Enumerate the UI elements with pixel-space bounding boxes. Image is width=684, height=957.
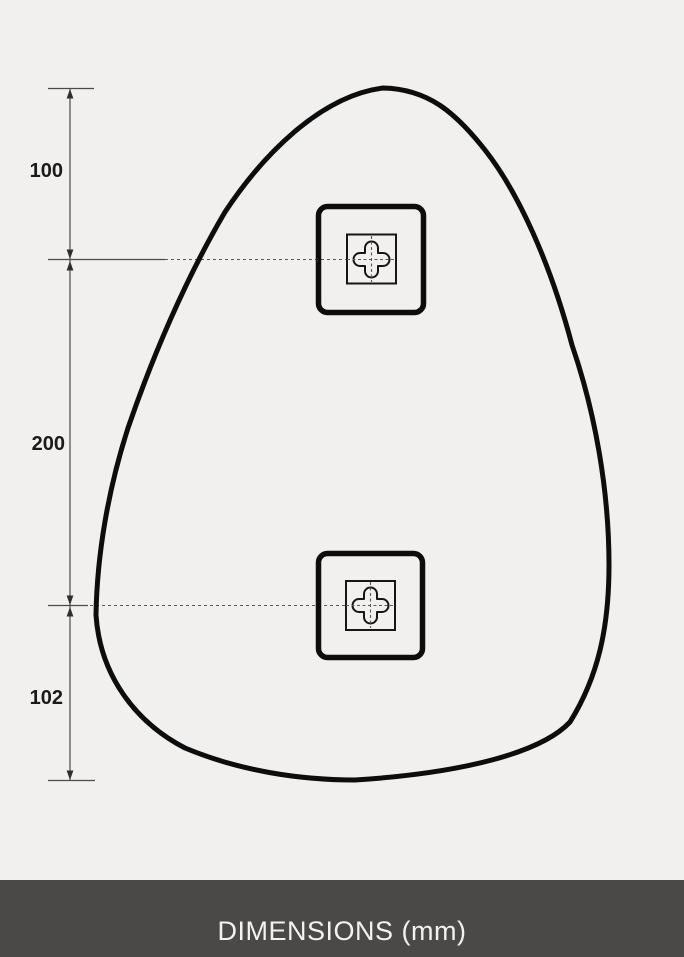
dim-label-100: 100 (30, 160, 63, 182)
dimension-drawing: 100 200 102 (0, 0, 684, 880)
dim-label-102: 102 (30, 687, 63, 709)
mirror-outline (96, 88, 609, 780)
arrow-down-icon (67, 250, 74, 260)
dim-label-200: 200 (32, 433, 65, 455)
arrow-up-icon (67, 89, 74, 99)
dimension-diagram-page: 100 200 102 DIMENSIONS (mm) (0, 0, 684, 957)
dimension-annotations (48, 89, 165, 781)
arrow-down-icon (67, 771, 74, 781)
footer-title: DIMENSIONS (mm) (218, 916, 467, 947)
arrow-up-icon (67, 261, 74, 271)
footer-bar: DIMENSIONS (mm) (0, 880, 684, 957)
arrow-up-icon (67, 607, 74, 617)
lower-mounting-bracket (319, 554, 423, 658)
arrow-down-icon (67, 596, 74, 606)
